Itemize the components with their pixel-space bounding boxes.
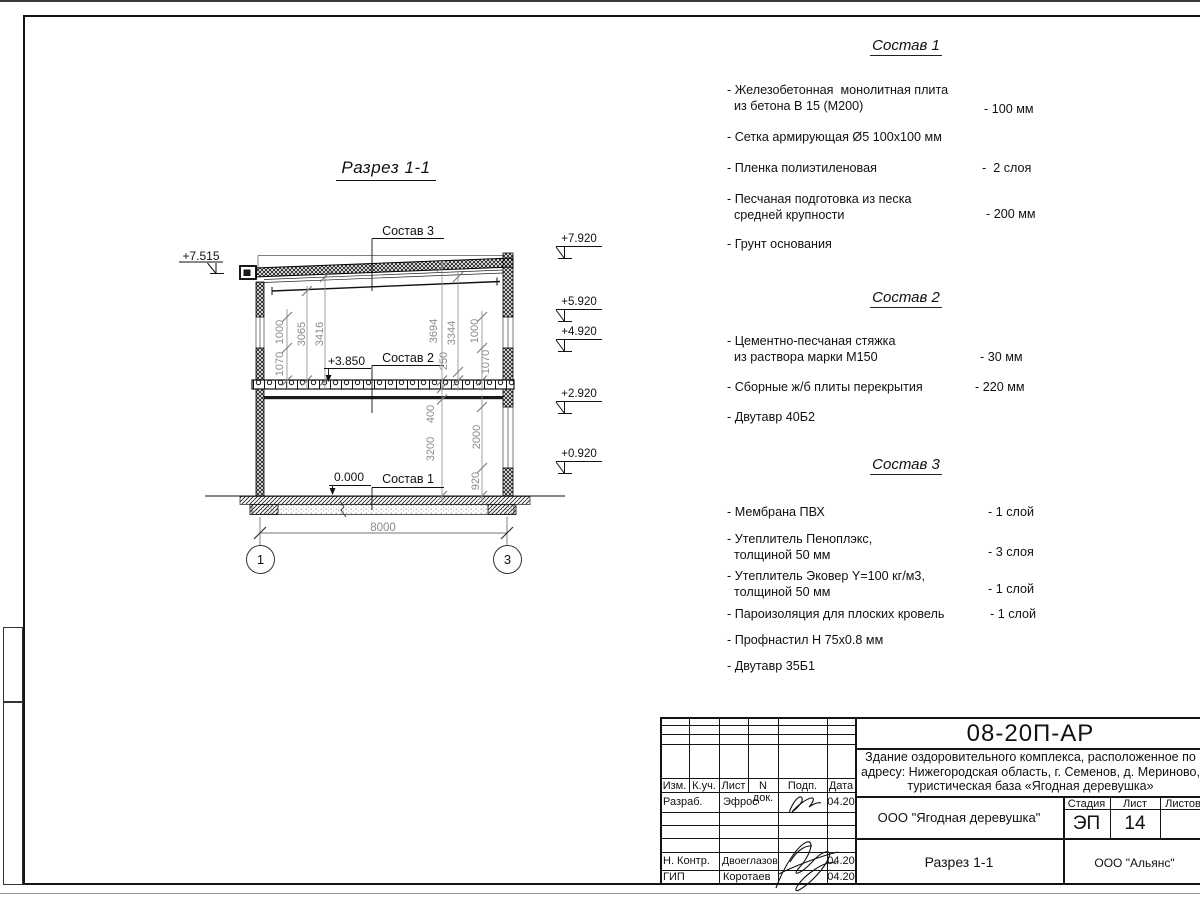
list-item-value: - 220 мм <box>975 380 1025 394</box>
elevation-mark: +4.920 <box>556 326 602 340</box>
col-header-izm: Изм. <box>660 780 689 792</box>
list-item-value: - 30 мм <box>980 350 1023 364</box>
grid-line <box>660 744 855 745</box>
date-gip: 04.20 <box>827 871 855 883</box>
list-item: - Песчаная подготовка из песка средней к… <box>727 192 983 223</box>
sheets-label: Листов <box>1160 798 1200 810</box>
list-item: - Железобетонная монолитная плита из бет… <box>727 83 983 114</box>
grid-line <box>855 838 1200 840</box>
elevation-mark: +5.920 <box>556 296 602 310</box>
drawing-sheet: { "section": { "title": "Разрез 1-1", "l… <box>0 0 1200 900</box>
dimension-text: 3416 <box>314 322 326 346</box>
name-nkontr: Двоеглазов <box>722 855 778 867</box>
axis-bubble-3: 3 <box>493 545 522 574</box>
leader-label-sostav1: Состав 1 <box>372 472 444 486</box>
grid-line <box>660 852 855 853</box>
list-item: - Сетка армирующая Ø5 100x100 мм <box>727 130 983 146</box>
axis-bubble-1: 1 <box>246 545 275 574</box>
role-gip: ГИП <box>663 871 685 883</box>
col-header-podp: Подп. <box>778 780 827 792</box>
elevation-mark: +0.920 <box>556 448 602 462</box>
dimension-text: 1000 <box>469 319 481 343</box>
dimension-text: 2000 <box>471 425 483 449</box>
grid-line <box>778 717 779 885</box>
list-title-sostav2: Состав 2 <box>870 289 942 308</box>
dimension-text: 3694 <box>428 319 440 343</box>
grid-line <box>660 812 855 813</box>
name-gip: Коротаев <box>723 871 771 883</box>
elevation-mark: +7.920 <box>556 233 602 247</box>
list-title-sostav3: Состав 3 <box>870 456 942 475</box>
grid-line <box>660 825 855 826</box>
leader-label-sostav3: Состав 3 <box>372 224 444 238</box>
list-item: - Мембрана ПВХ <box>727 505 989 521</box>
grid-line <box>660 725 855 726</box>
level-mark-3850: +3.850 <box>323 354 370 368</box>
date-razrab: 04.20 <box>827 796 855 808</box>
stage-label: Стадия <box>1063 798 1110 810</box>
grid-line <box>660 838 855 839</box>
dimension-text: 3344 <box>446 321 458 345</box>
date-nkontr: 04.20 <box>827 855 855 867</box>
section-title: Разрез 1-1 <box>336 158 436 181</box>
role-razrab: Разраб. <box>663 796 703 808</box>
document-code: 08-20П-АР <box>855 720 1200 748</box>
dimension-text: 3200 <box>425 437 437 461</box>
list-item: - Утеплитель Эковер Y=100 кг/м3, толщино… <box>727 569 989 600</box>
span-dimension: 8000 <box>362 522 404 534</box>
floor-slab <box>252 380 514 399</box>
list-item-value: - 1 слой <box>988 505 1034 519</box>
project-description-line1: Здание оздоровительного комплекса, распо… <box>853 750 1200 764</box>
list-item: - Сборные ж/б плиты перекрытия <box>727 380 983 396</box>
roof <box>240 256 513 296</box>
dimension-text: 3065 <box>296 322 308 346</box>
project-description-line3: туристическая база «Ягодная деревушка» <box>853 779 1200 793</box>
leader-label-sostav2: Состав 2 <box>372 351 444 365</box>
name-razrab: Эфрос <box>723 796 758 808</box>
grid-line <box>660 734 855 735</box>
stage-value: ЭП <box>1063 813 1110 835</box>
sheet-title: Разрез 1-1 <box>855 854 1063 870</box>
list-item: - Двутавр 35Б1 <box>727 659 989 675</box>
role-nkontr: Н. Контр. <box>663 855 710 867</box>
list-item-value: - 1 слой <box>990 607 1036 621</box>
list-item-value: - 200 мм <box>986 207 1036 221</box>
dimension-text: 1070 <box>480 350 492 374</box>
project-description-line2: адресу: Нижегородская область, г. Семено… <box>853 765 1200 779</box>
sheet-number: 14 <box>1110 813 1160 835</box>
list-item: - Грунт основания <box>727 237 983 253</box>
list-item-value: - 1 слой <box>988 582 1034 596</box>
grid-line <box>719 717 720 885</box>
list-item: - Пленка полиэтиленовая <box>727 161 983 177</box>
right-wall <box>503 253 513 496</box>
col-header-list: Лист <box>719 780 748 792</box>
company-name: ООО "Альянс" <box>1063 856 1200 870</box>
dimension-text: 250 <box>438 352 450 370</box>
col-header-kuch: К.уч. <box>689 780 719 792</box>
list-title-sostav1: Состав 1 <box>870 37 942 56</box>
list-item-value: - 3 слоя <box>988 545 1034 559</box>
ground-floor <box>205 496 565 517</box>
dimension-text: 400 <box>425 405 437 423</box>
list-item: - Двутавр 40Б2 <box>727 410 983 426</box>
list-item: - Пароизоляция для плоских кровель <box>727 607 989 623</box>
col-header-data: Дата <box>827 780 855 792</box>
elevation-mark: +2.920 <box>556 388 602 402</box>
sheet-label: Лист <box>1110 798 1160 810</box>
list-item-value: - 100 мм <box>984 102 1034 116</box>
list-item: - Утеплитель Пеноплэкс, толщиной 50 мм <box>727 532 989 563</box>
list-item: - Профнастил Н 75x0.8 мм <box>727 633 989 649</box>
level-mark-7515: +7.515 <box>179 249 223 263</box>
list-item-value: - 2 слоя <box>982 161 1031 175</box>
dimension-text: 1070 <box>274 352 286 376</box>
dimension-text: 920 <box>470 472 482 490</box>
list-item: - Цементно-песчаная стяжка из раствора м… <box>727 334 983 365</box>
level-mark-0000: 0.000 <box>328 470 370 484</box>
client-name: ООО "Ягодная деревушка" <box>855 810 1063 825</box>
dimension-text: 1000 <box>274 320 286 344</box>
